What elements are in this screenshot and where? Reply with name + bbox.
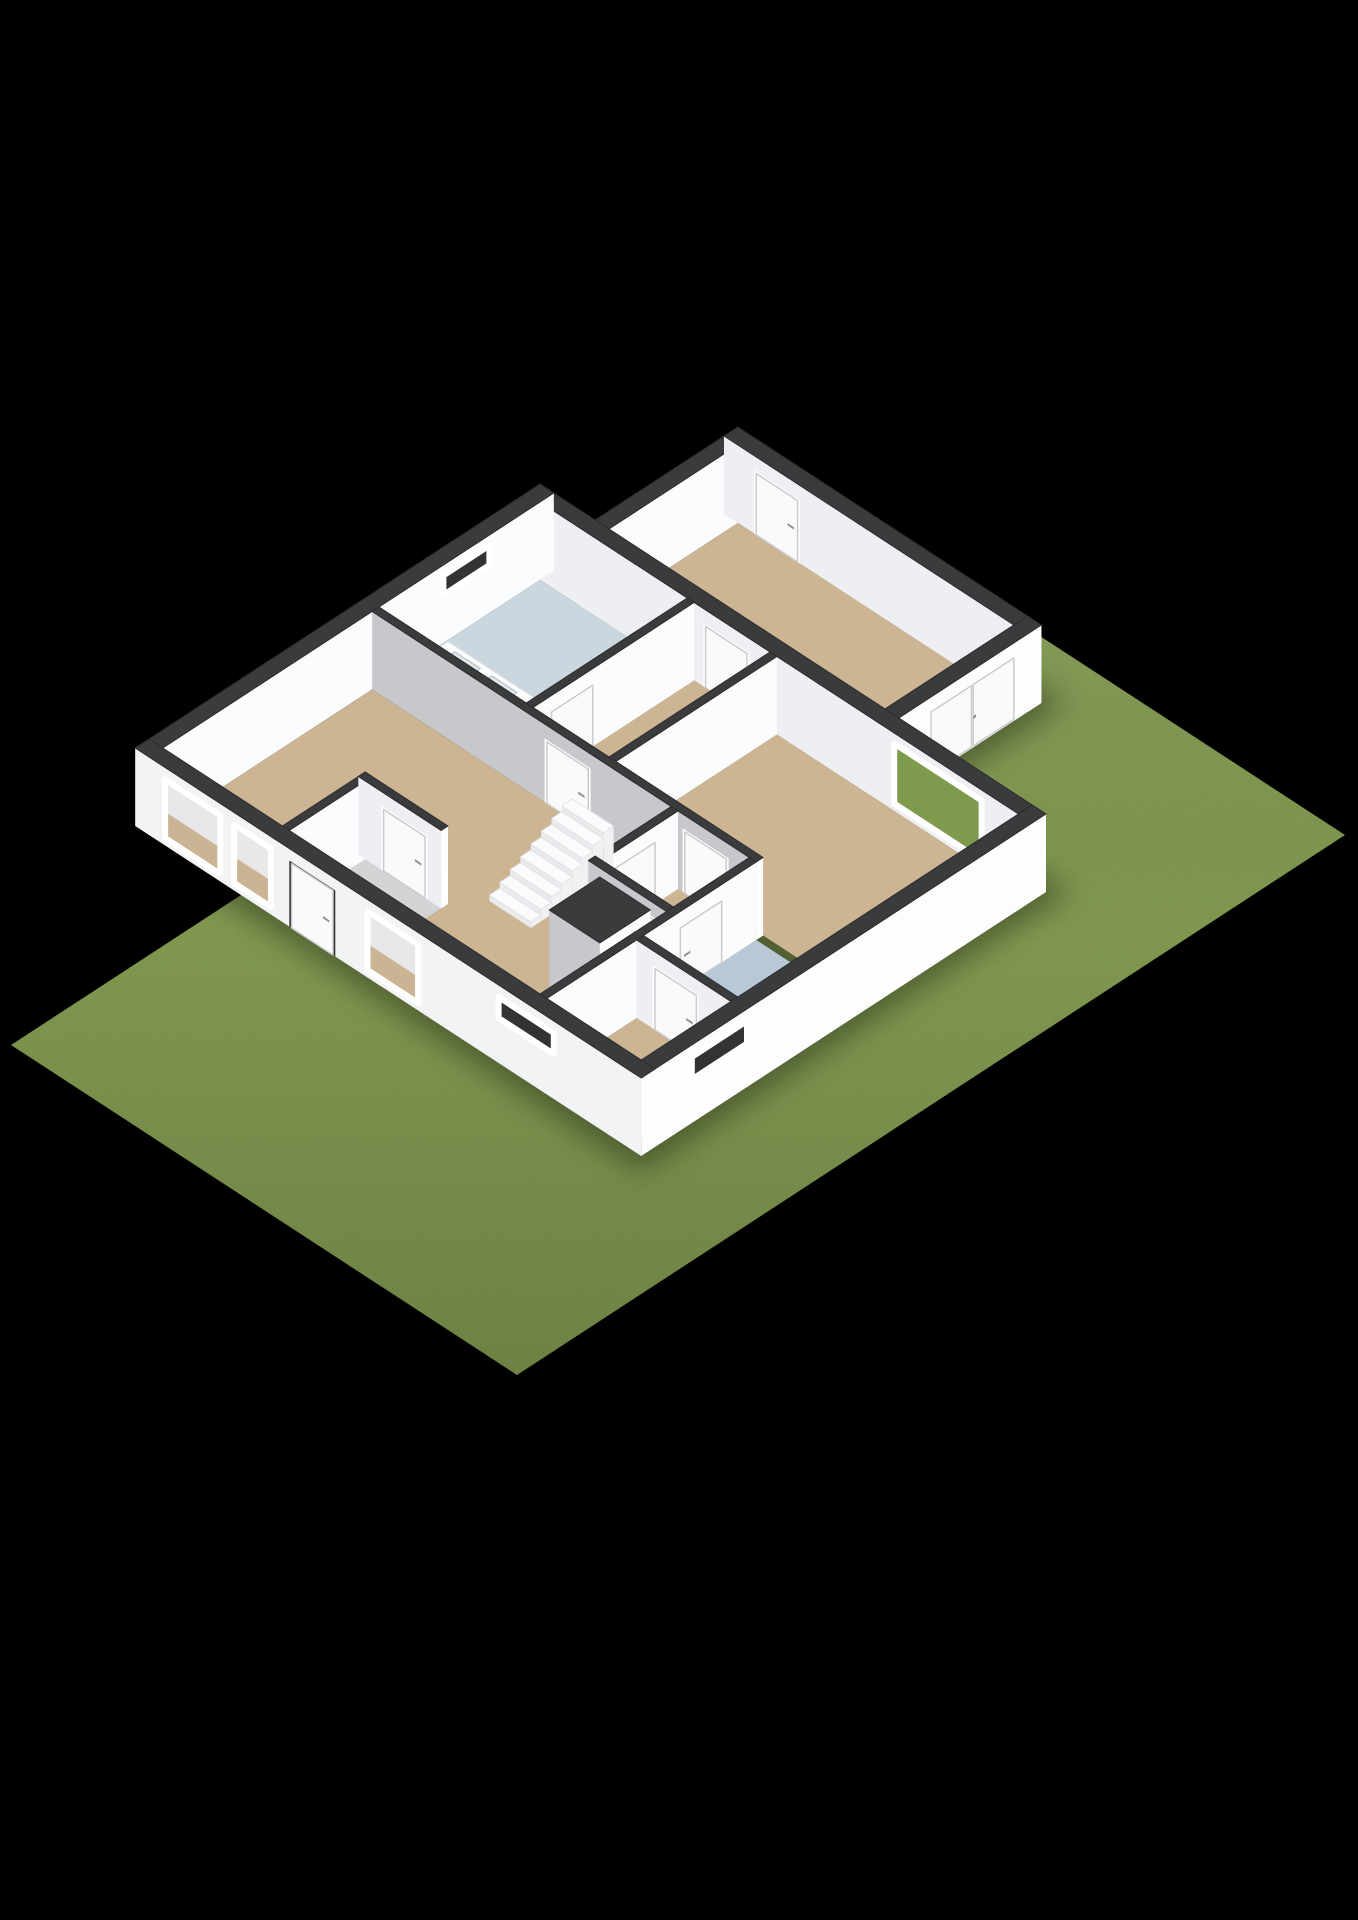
wall-endcap [441,826,448,909]
floorplan-3d-render [0,0,1358,1920]
floorplan-scene [0,0,1358,1920]
wall-endcap [756,858,763,941]
